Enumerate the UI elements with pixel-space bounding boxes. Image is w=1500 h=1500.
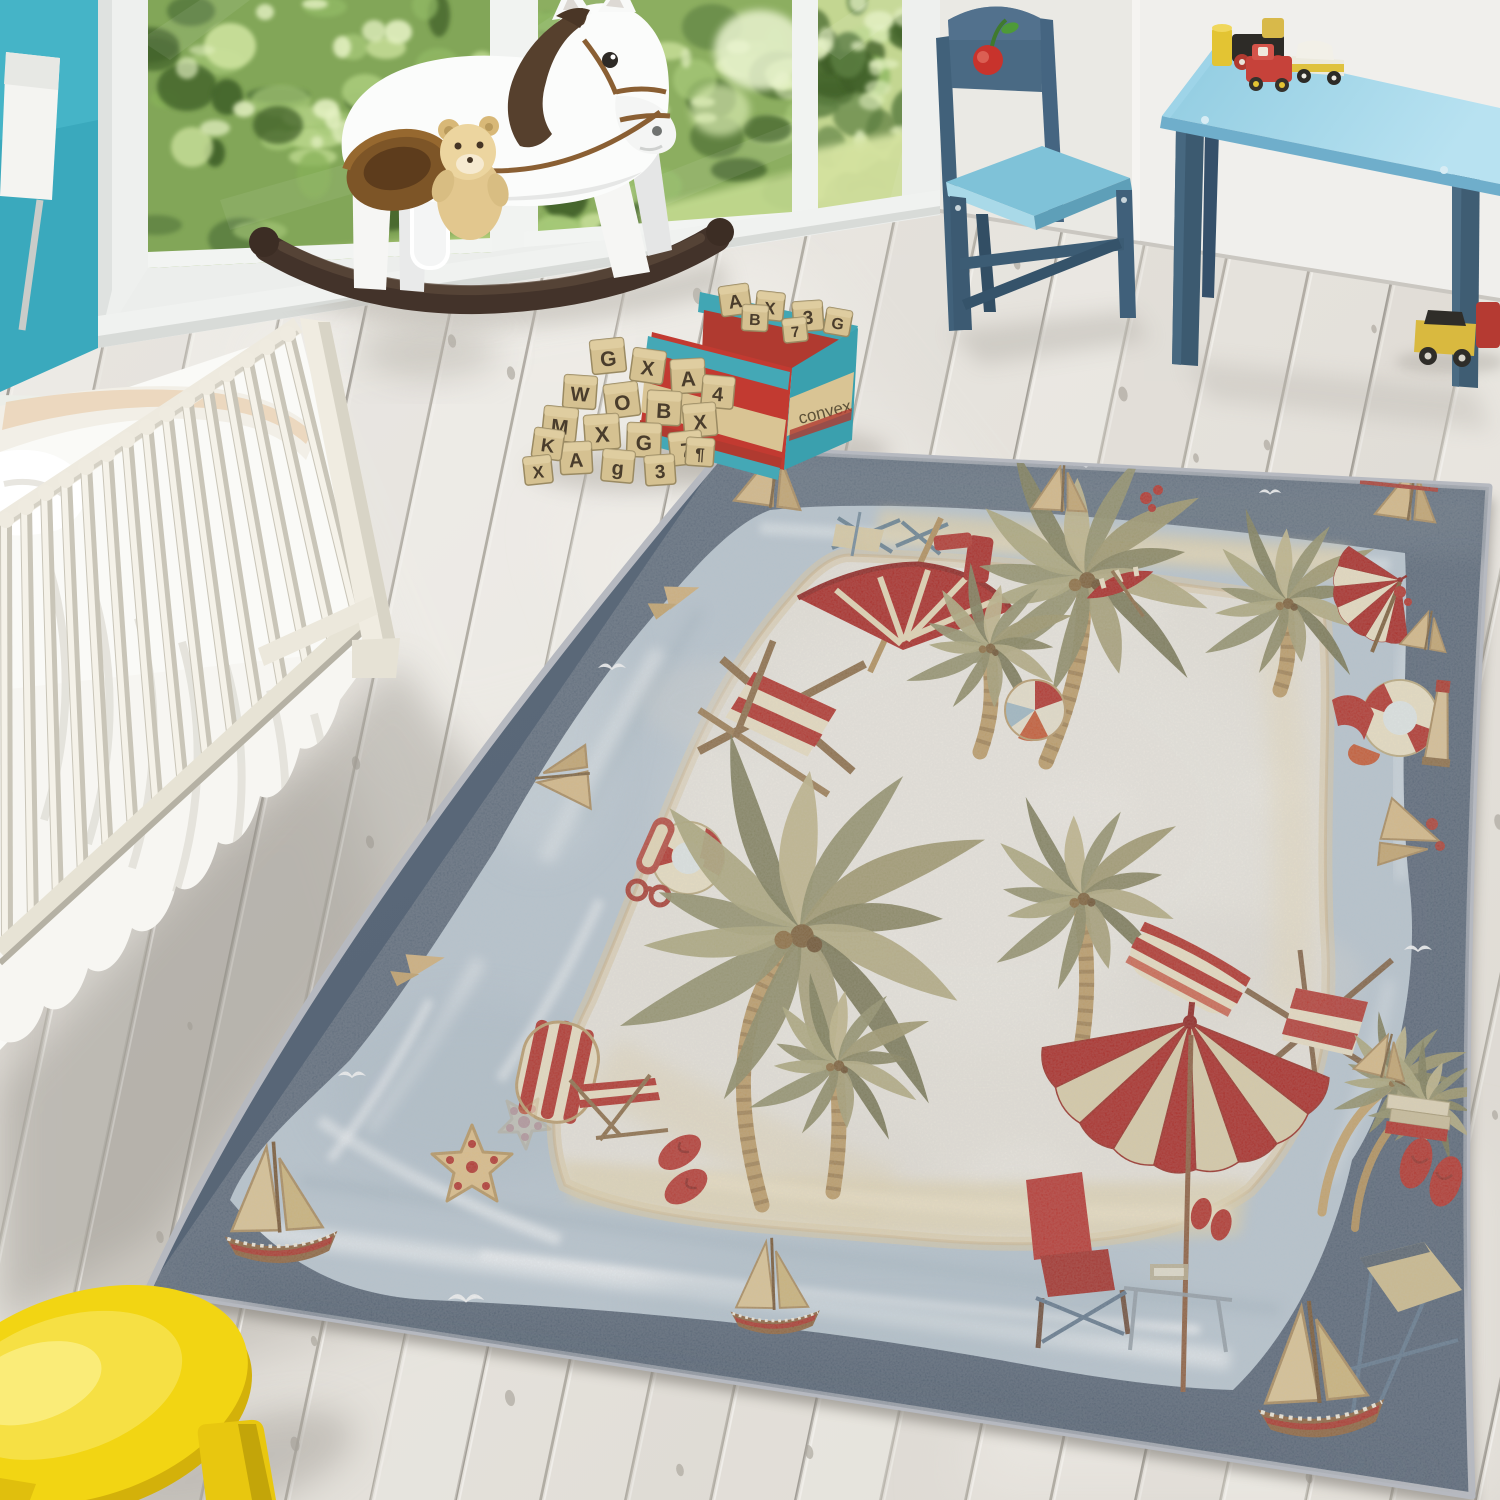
svg-text:3: 3	[654, 462, 666, 484]
svg-text:G: G	[599, 347, 618, 372]
svg-text:W: W	[570, 383, 590, 406]
svg-text:O: O	[613, 391, 632, 416]
svg-text:g: g	[611, 457, 625, 480]
svg-text:X: X	[594, 421, 611, 447]
svg-text:7: 7	[790, 324, 800, 342]
svg-text:A: A	[568, 450, 584, 473]
svg-text:B: B	[749, 312, 761, 330]
svg-text:¶: ¶	[694, 445, 705, 465]
svg-text:B: B	[656, 400, 672, 424]
svg-text:G: G	[635, 432, 652, 456]
svg-text:A: A	[680, 368, 696, 392]
